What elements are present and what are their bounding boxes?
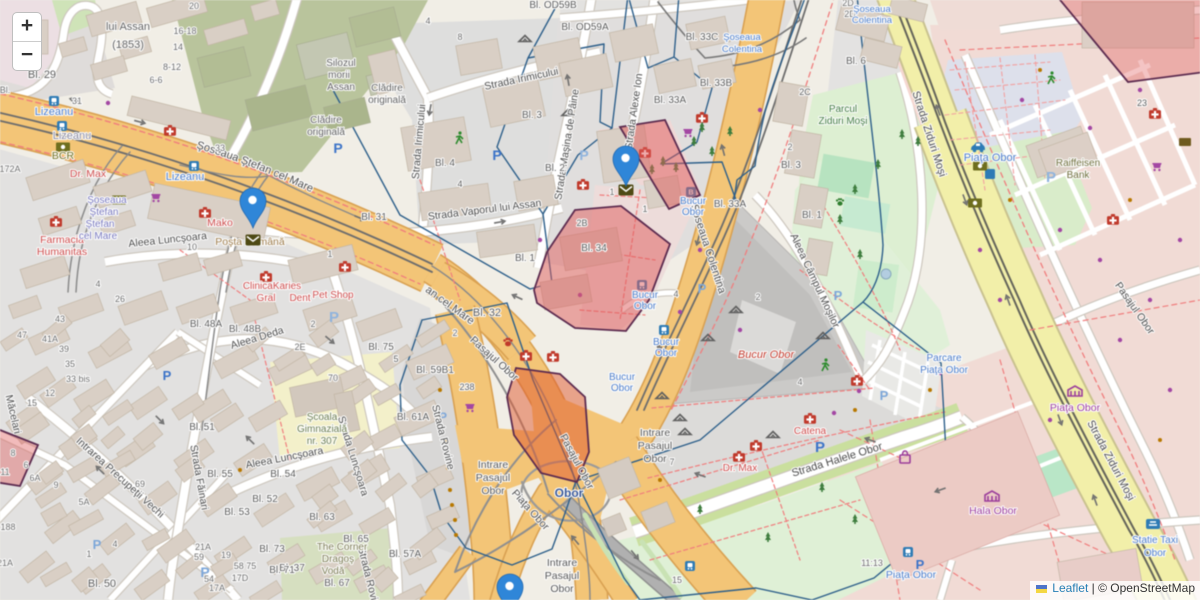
svg-text:P: P xyxy=(333,140,342,156)
svg-text:4: 4 xyxy=(95,279,100,289)
svg-text:Pet Shop: Pet Shop xyxy=(312,290,354,301)
svg-text:originală: originală xyxy=(368,95,406,106)
svg-text:15: 15 xyxy=(27,398,37,408)
svg-text:P: P xyxy=(329,309,339,326)
svg-text:P: P xyxy=(815,439,825,456)
svg-text:Farmacia: Farmacia xyxy=(40,234,84,246)
svg-text:originală: originală xyxy=(307,127,345,138)
svg-text:Raiffeisen: Raiffeisen xyxy=(1056,158,1100,169)
svg-text:Şoseaua: Şoseaua xyxy=(723,32,761,43)
svg-text:Humanitas: Humanitas xyxy=(37,246,87,258)
svg-text:6-6: 6-6 xyxy=(149,75,162,85)
svg-text:Şoseaua: Şoseaua xyxy=(87,195,127,206)
svg-text:21A: 21A xyxy=(195,542,211,552)
svg-text:Bucur: Bucur xyxy=(680,196,707,207)
svg-text:Bl.: Bl. xyxy=(0,85,10,95)
svg-text:15: 15 xyxy=(672,575,682,585)
svg-text:2B: 2B xyxy=(576,218,587,228)
svg-text:BCR: BCR xyxy=(52,150,75,162)
svg-text:6: 6 xyxy=(23,460,28,470)
svg-text:43: 43 xyxy=(55,314,65,324)
svg-text:Lizeanu: Lizeanu xyxy=(35,106,74,118)
svg-text:Ştefan: Ştefan xyxy=(90,207,119,218)
svg-text:Piaţa Obor: Piaţa Obor xyxy=(920,365,968,376)
svg-text:4: 4 xyxy=(112,539,117,549)
svg-text:26: 26 xyxy=(115,294,125,304)
svg-text:2C: 2C xyxy=(799,87,811,97)
svg-text:P: P xyxy=(880,388,889,403)
svg-text:69: 69 xyxy=(135,479,145,489)
svg-text:Obor: Obor xyxy=(550,583,574,595)
svg-text:Pasajul: Pasajul xyxy=(638,440,672,452)
svg-text:70: 70 xyxy=(328,373,338,383)
svg-text:Dragoş: Dragoş xyxy=(322,554,354,565)
svg-text:11: 11 xyxy=(0,467,9,477)
svg-text:188: 188 xyxy=(0,522,15,532)
svg-text:(1853): (1853) xyxy=(112,39,144,51)
svg-text:11:13: 11:13 xyxy=(861,558,883,568)
svg-text:Piaţa Obor: Piaţa Obor xyxy=(1050,402,1101,414)
svg-text:4: 4 xyxy=(425,16,430,26)
svg-text:Bl. 71: Bl. 71 xyxy=(269,565,295,576)
svg-text:P: P xyxy=(163,368,172,383)
svg-text:nr. 307: nr. 307 xyxy=(307,436,338,447)
svg-text:6A: 6A xyxy=(29,473,40,483)
svg-text:Gimnazială: Gimnazială xyxy=(297,424,347,435)
svg-text:Bl. 55: Bl. 55 xyxy=(207,469,233,480)
svg-text:Lizeanu: Lizeanu xyxy=(166,171,205,183)
svg-text:16-18: 16-18 xyxy=(173,26,196,36)
svg-text:The Corner: The Corner xyxy=(317,542,368,553)
svg-text:Bl. 31: Bl. 31 xyxy=(361,212,387,223)
svg-text:8: 8 xyxy=(10,448,15,458)
svg-text:2E: 2E xyxy=(294,342,305,352)
svg-text:P: P xyxy=(698,281,707,296)
svg-text:Bl. 50: Bl. 50 xyxy=(88,578,116,590)
svg-text:Bucur Obor: Bucur Obor xyxy=(738,349,796,361)
svg-text:Bl. 59B1: Bl. 59B1 xyxy=(416,365,454,376)
svg-text:Bl. 32: Bl. 32 xyxy=(473,307,501,319)
svg-text:Bl. 33B: Bl. 33B xyxy=(700,78,733,89)
svg-text:Catena: Catena xyxy=(794,426,827,437)
svg-text:morii: morii xyxy=(328,70,350,81)
svg-text:Bl. 3: Bl. 3 xyxy=(522,110,542,121)
svg-text:10: 10 xyxy=(187,242,197,252)
svg-text:Hala Obor: Hala Obor xyxy=(969,505,1017,517)
svg-text:Obor: Obor xyxy=(655,348,678,359)
svg-text:Clădire: Clădire xyxy=(371,83,403,94)
svg-text:Obor: Obor xyxy=(611,383,634,394)
svg-text:Bl. OD59A: Bl. OD59A xyxy=(561,22,609,33)
svg-text:Bl. 52: Bl. 52 xyxy=(252,494,278,505)
svg-text:4: 4 xyxy=(457,179,462,189)
svg-text:Bucur: Bucur xyxy=(609,372,636,383)
svg-text:Bl. 75: Bl. 75 xyxy=(368,342,394,353)
svg-text:Bl. 48A: Bl. 48A xyxy=(190,319,223,330)
svg-text:Bl. 33A: Bl. 33A xyxy=(654,95,687,106)
svg-text:Silozul: Silozul xyxy=(326,58,355,69)
svg-text:33 bis: 33 bis xyxy=(66,374,91,384)
svg-text:Bl. 63: Bl. 63 xyxy=(309,512,335,523)
svg-text:Bl. OD59B: Bl. OD59B xyxy=(529,0,577,11)
svg-text:23: 23 xyxy=(1137,98,1147,108)
svg-text:Pasajul: Pasajul xyxy=(545,570,579,582)
svg-text:Şcoala: Şcoala xyxy=(307,412,338,423)
svg-text:Piaţa Obor: Piaţa Obor xyxy=(886,569,937,581)
svg-text:P: P xyxy=(1046,169,1056,186)
svg-text:Dr. Max: Dr. Max xyxy=(70,168,107,180)
svg-text:lui Assan: lui Assan xyxy=(106,21,150,33)
svg-text:2: 2 xyxy=(452,328,457,338)
svg-text:31: 31 xyxy=(72,96,82,106)
svg-text:Ziduri Moşi: Ziduri Moşi xyxy=(819,116,868,127)
svg-text:7: 7 xyxy=(669,457,674,467)
svg-text:20: 20 xyxy=(189,1,199,11)
svg-text:Lizeanu: Lizeanu xyxy=(53,130,92,142)
svg-text:8-12: 8-12 xyxy=(163,62,181,72)
svg-text:1: 1 xyxy=(609,187,614,197)
svg-text:2: 2 xyxy=(755,292,760,302)
svg-text:Bl. 6: Bl. 6 xyxy=(846,56,866,67)
svg-text:Ştefan: Ştefan xyxy=(86,219,115,230)
svg-text:5A: 5A xyxy=(78,497,89,507)
svg-text:Bl. 3: Bl. 3 xyxy=(781,160,801,171)
svg-text:8: 8 xyxy=(457,32,462,42)
svg-text:Parcul: Parcul xyxy=(829,104,857,115)
svg-text:P: P xyxy=(834,288,843,303)
svg-text:12: 12 xyxy=(45,388,55,398)
svg-text:Colentina: Colentina xyxy=(722,44,763,55)
svg-text:Bl. 1: Bl. 1 xyxy=(515,253,535,264)
svg-text:Bank: Bank xyxy=(1067,170,1091,181)
svg-text:35: 35 xyxy=(65,359,75,369)
svg-text:Bl. 73: Bl. 73 xyxy=(259,544,285,555)
svg-text:Bl. 33A: Bl. 33A xyxy=(714,199,747,210)
svg-text:Bl. 48B: Bl. 48B xyxy=(229,324,262,335)
svg-text:Obor: Obor xyxy=(682,207,705,218)
svg-text:Piaţa Obor: Piaţa Obor xyxy=(964,152,1017,164)
svg-text:2: 2 xyxy=(310,319,315,329)
svg-text:1: 1 xyxy=(327,249,332,259)
svg-text:47: 47 xyxy=(17,330,27,340)
svg-text:1: 1 xyxy=(642,204,647,214)
svg-text:Intrare: Intrare xyxy=(478,459,509,471)
svg-text:Mako: Mako xyxy=(207,217,233,229)
svg-text:4: 4 xyxy=(673,289,678,299)
svg-text:Gral: Gral xyxy=(257,293,276,304)
svg-text:P: P xyxy=(579,147,588,163)
svg-text:172A: 172A xyxy=(0,164,21,174)
svg-text:17A: 17A xyxy=(209,583,225,593)
svg-text:Bl. 57A: Bl. 57A xyxy=(389,549,422,560)
svg-text:Bl. 34: Bl. 34 xyxy=(581,243,607,254)
svg-text:238: 238 xyxy=(459,382,474,392)
svg-text:Bl. 51: Bl. 51 xyxy=(189,422,215,433)
svg-text:58 75: 58 75 xyxy=(234,561,257,571)
svg-text:Statie Taxi: Statie Taxi xyxy=(1132,535,1178,546)
svg-text:Pasajul: Pasajul xyxy=(476,472,510,484)
svg-text:Bl. 4: Bl. 4 xyxy=(435,158,455,169)
svg-text:59: 59 xyxy=(194,552,204,562)
svg-text:1: 1 xyxy=(86,549,91,559)
svg-text:9: 9 xyxy=(53,480,58,490)
svg-text:17D: 17D xyxy=(232,573,249,583)
svg-text:Dent: Dent xyxy=(289,293,310,304)
svg-text:cel Mare: cel Mare xyxy=(79,231,118,242)
svg-text:Bl. 33C: Bl. 33C xyxy=(686,32,719,43)
svg-text:4: 4 xyxy=(797,377,802,387)
svg-text:Bucur: Bucur xyxy=(632,290,659,301)
svg-text:Bl. 2: Bl. 2 xyxy=(545,163,565,174)
svg-text:Intrare: Intrare xyxy=(547,557,578,569)
svg-text:Bl. 1: Bl. 1 xyxy=(802,210,822,221)
svg-text:Colentina: Colentina xyxy=(852,15,893,26)
svg-text:19: 19 xyxy=(221,550,231,560)
svg-text:Bl. 53: Bl. 53 xyxy=(224,507,250,518)
svg-text:Dr. Max: Dr. Max xyxy=(723,463,757,474)
svg-text:2: 2 xyxy=(787,142,792,152)
svg-text:Obor: Obor xyxy=(555,486,584,500)
svg-text:Şoseaua: Şoseaua xyxy=(853,4,891,15)
svg-text:33: 33 xyxy=(215,143,225,153)
svg-text:Vodă: Vodă xyxy=(322,566,345,577)
svg-text:Bl. 67: Bl. 67 xyxy=(324,578,350,589)
svg-text:P: P xyxy=(492,147,501,163)
svg-text:Parcare: Parcare xyxy=(926,353,961,364)
svg-text:39: 39 xyxy=(59,344,69,354)
svg-text:Clădire: Clădire xyxy=(310,115,342,126)
svg-text:21A: 21A xyxy=(0,558,13,568)
svg-text:Bucur: Bucur xyxy=(653,337,680,348)
svg-text:Bl. 61A: Bl. 61A xyxy=(397,412,430,423)
svg-text:5: 5 xyxy=(393,354,398,364)
svg-text:ClinicaKaries: ClinicaKaries xyxy=(243,281,301,292)
svg-text:Obor: Obor xyxy=(1144,548,1167,559)
svg-text:Assan: Assan xyxy=(327,82,355,93)
svg-text:Obor: Obor xyxy=(481,485,505,497)
svg-text:Obor: Obor xyxy=(634,301,657,312)
svg-text:Obor: Obor xyxy=(643,453,667,465)
svg-text:14: 14 xyxy=(173,42,183,52)
svg-text:P: P xyxy=(93,537,102,552)
svg-text:Bl. 54: Bl. 54 xyxy=(270,469,296,480)
svg-text:Intrare: Intrare xyxy=(640,427,671,439)
svg-text:41A: 41A xyxy=(42,334,58,344)
